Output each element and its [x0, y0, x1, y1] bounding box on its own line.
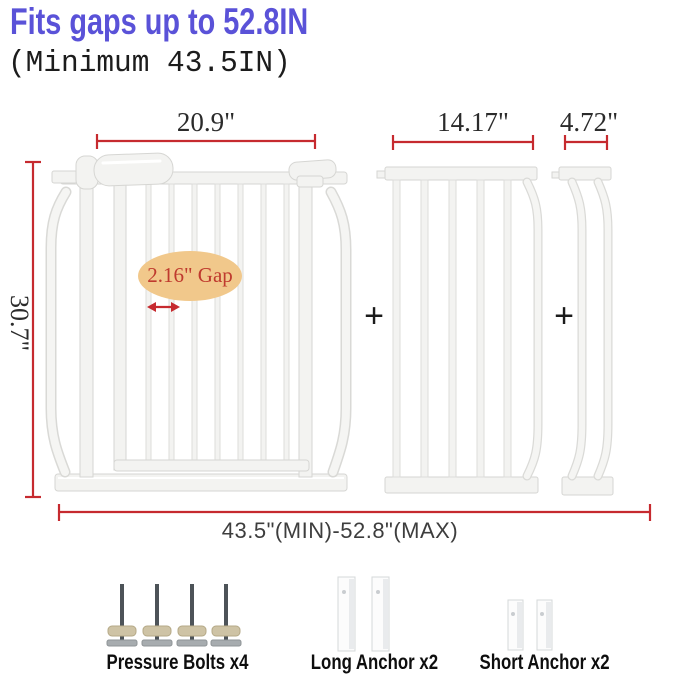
- extension-large-bar: [477, 180, 484, 477]
- gap-dimension-label: 2.16" Gap: [138, 263, 242, 288]
- extension-small-top-rail: [559, 167, 611, 180]
- anchor-shade: [517, 602, 522, 648]
- extension-large-curved-bar-face: [527, 182, 538, 476]
- gate-left-post-cap: [52, 171, 77, 183]
- extension-large-bar: [393, 180, 400, 477]
- anchor-shade: [546, 602, 551, 648]
- gate-door-bottom-rail: [114, 460, 309, 471]
- gate-right-frame-post: [299, 181, 312, 477]
- hardware-icons: [107, 577, 552, 651]
- headline: Fits gaps up to 52.8IN: [10, 1, 308, 43]
- bolt-knob: [212, 626, 240, 636]
- anchor-shade: [349, 579, 354, 649]
- gate-door-bar: [284, 184, 289, 462]
- gate-width-dimension: 20.9": [97, 107, 315, 138]
- plus-sign: +: [355, 297, 393, 336]
- anchor-hole: [540, 612, 544, 616]
- gate-door-bar: [192, 184, 197, 462]
- anchor-hole: [511, 612, 515, 616]
- gate-handle: [94, 153, 174, 187]
- extension-large-dimension: 14.17": [403, 107, 543, 138]
- extension-large-bar: [449, 180, 456, 477]
- product-infographic: Fits gaps up to 52.8IN (Minimum 43.5IN) …: [0, 0, 679, 679]
- gate-left-curved-post-face: [51, 192, 66, 472]
- gate-right-curved-post-face: [331, 192, 346, 472]
- gate-door-left-stile: [114, 182, 126, 470]
- extension-small-curved-bar-face: [598, 182, 608, 476]
- long-anchor-icon: [372, 577, 389, 651]
- plus-sign: +: [545, 297, 583, 336]
- diagram-canvas: [0, 0, 679, 679]
- bolt-knob: [108, 626, 136, 636]
- extension-large-bar: [421, 180, 428, 477]
- bolt-base: [177, 640, 207, 646]
- gate-door-bar: [169, 184, 174, 462]
- gate-height-dimension: 30.7": [2, 268, 34, 378]
- short-anchor-icon: [508, 600, 523, 650]
- gate-door-bar: [238, 184, 243, 462]
- gap-arrow-right-head: [171, 302, 180, 312]
- long-anchor-icon: [338, 577, 355, 651]
- pressure-bolt-icon: [142, 584, 172, 646]
- bolt-base: [142, 640, 172, 646]
- gate-latch-lower: [297, 176, 323, 187]
- extension-small-dimension: 4.72": [553, 107, 625, 138]
- gate-door-bar: [215, 184, 220, 462]
- gate-door-bar: [261, 184, 266, 462]
- bolt-base: [107, 640, 137, 646]
- pressure-bolt-icon: [107, 584, 137, 646]
- bolt-knob: [143, 626, 171, 636]
- anchor-hole: [376, 590, 380, 594]
- anchor-shade: [383, 579, 388, 649]
- bolt-base: [211, 640, 241, 646]
- pressure-bolt-icon: [211, 584, 241, 646]
- subheadline: (Minimum 43.5IN): [8, 46, 291, 81]
- gate-handle-highlight: [103, 161, 160, 163]
- short-anchor-label: Short Anchor x2: [480, 651, 596, 675]
- bolt-knob: [178, 626, 206, 636]
- extension-large-bar: [504, 180, 511, 477]
- anchor-hole: [342, 590, 346, 594]
- gate-left-frame-post: [80, 181, 93, 477]
- extension-large-top-rail: [385, 167, 537, 180]
- gate-door-bar: [146, 184, 151, 462]
- total-width-dimension: 43.5"(MIN)-52.8"(MAX): [150, 518, 530, 544]
- main-gate-illustration: [51, 153, 347, 491]
- short-anchor-icon: [537, 600, 552, 650]
- pressure-bolts-label: Pressure Bolts x4: [107, 651, 239, 675]
- pressure-bolt-icon: [177, 584, 207, 646]
- long-anchor-label: Long Anchor x2: [311, 651, 421, 675]
- extension-large-illustration: [377, 167, 538, 493]
- extension-large-bottom-rail: [385, 477, 538, 493]
